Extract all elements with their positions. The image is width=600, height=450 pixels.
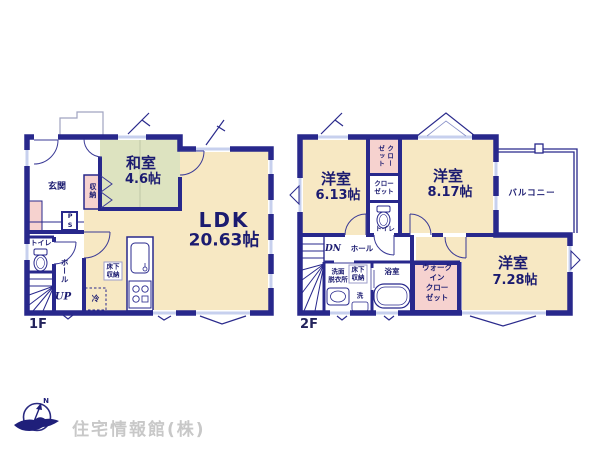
label-wic-line4: ゼット (426, 294, 449, 302)
label-balcony: バルコニー (508, 189, 555, 198)
label-ldk-size: 20.63帖 (189, 232, 260, 251)
washer-icon (352, 302, 368, 311)
label-wic-line1: ウォーク (422, 264, 452, 272)
label-bedroom3: 洋室 (498, 255, 528, 272)
label-ps: PS (66, 212, 73, 230)
floorplan-graphic (0, 0, 600, 450)
label-wic-line2: イン (430, 274, 445, 282)
floor-label-1f: 1F (29, 318, 47, 332)
label-wic-line3: クロー (426, 284, 449, 292)
label-hall-2f: ホール (351, 245, 374, 253)
label-yukashita-1f: 床下収納 (104, 262, 123, 281)
shoe-cabinet (29, 201, 42, 232)
label-bedroom1-size: 6.13帖 (315, 189, 360, 203)
compass-north-label: N (43, 398, 49, 406)
label-dn: DN (325, 245, 341, 255)
label-ldk: LDK (199, 209, 250, 231)
floor-label-2f: 2F (300, 318, 318, 332)
label-shunou: 収納 (88, 183, 96, 199)
label-washitsu-size: 4.6帖 (125, 173, 161, 187)
compass-icon (14, 403, 59, 431)
kitchen-icon (127, 237, 153, 311)
label-toilet-2f: トイレ (375, 225, 395, 232)
company-logo-text: 住宅情報館(株) (72, 415, 206, 440)
floorplan-page: 和室 4.6帖 LDK 20.63帖 玄関 収納 PS トイレ ホール UP 床… (0, 0, 600, 450)
porch-outline (60, 112, 103, 137)
label-closet1-line1: クロー (385, 145, 392, 168)
label-bedroom2-size: 8.17帖 (427, 186, 472, 200)
label-hall-1f: ホール (60, 258, 68, 284)
label-fridge: 冷 (92, 295, 100, 303)
label-bedroom2: 洋室 (433, 168, 463, 185)
label-bath: 浴室 (385, 268, 400, 276)
label-toilet-1f: トイレ (31, 240, 52, 248)
label-washitsu: 和室 (126, 155, 156, 172)
label-bedroom3-size: 7.28帖 (492, 274, 537, 288)
label-bedroom1: 洋室 (321, 171, 351, 188)
label-genkan: 玄関 (48, 183, 66, 193)
label-up: UP (55, 292, 71, 303)
bathtub-icon (374, 284, 410, 308)
label-yukashita-2f: 床下収納 (349, 265, 368, 284)
label-closet2: クローゼット (374, 181, 395, 196)
label-senmen-line2: 脱衣所 (328, 276, 348, 283)
label-closet1-line2: ゼット (376, 145, 383, 168)
sink-icon (327, 288, 349, 305)
toilet-icon-1f (34, 249, 47, 271)
label-washer: 洗 (357, 292, 364, 299)
